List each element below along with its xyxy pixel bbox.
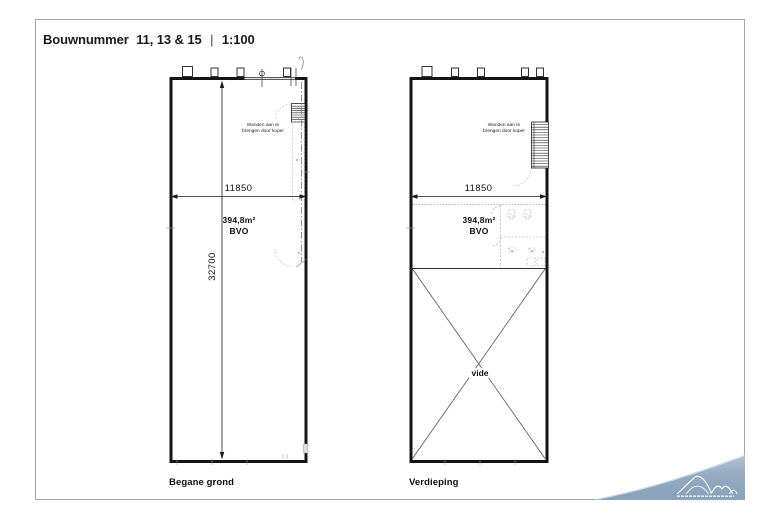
plan2-columns — [422, 67, 544, 77]
plan1-window-line — [243, 78, 296, 80]
plan1-caption: Begane grond — [169, 477, 234, 488]
plan1-columns — [183, 67, 291, 77]
vide-text: vide — [469, 368, 490, 378]
title-scale: 1:100 — [222, 32, 255, 47]
plan2-width-dimension-label: 11850 — [456, 183, 501, 194]
plan1-depth-dimension-label: 32700 — [207, 244, 218, 289]
plan2-vide-cross — [413, 269, 546, 459]
plan2-horizontal-dimension — [411, 194, 548, 198]
plan2-vide-label: vide — [461, 368, 499, 378]
plan2-walls — [410, 77, 549, 463]
plan1-note: Wanden aan te brengen door koper — [239, 123, 287, 135]
plan2-fixture-dots — [511, 250, 544, 253]
title-prefix: Bouwnummer — [43, 32, 129, 47]
plan1-area-label: 394,8m² — [213, 215, 265, 225]
plan1-horizontal-dimension — [171, 194, 307, 198]
sheet-title: Bouwnummer 11, 13 & 15 | 1:100 — [43, 32, 255, 47]
plan1-window-marks — [260, 57, 304, 87]
plan2-caption: Verdieping — [409, 477, 459, 488]
plan2-wall-ticks — [406, 228, 515, 465]
plan2-note-line2: brengen door koper — [480, 129, 528, 135]
sheet-frame — [36, 20, 745, 500]
plan2-note: Wanden aan te brengen door koper — [480, 123, 528, 135]
plan-begane-grond — [166, 57, 310, 465]
plan1-note-line2: brengen door koper — [239, 129, 287, 135]
plan1-walls — [170, 77, 308, 463]
plan2-area-type-label: BVO — [453, 226, 505, 236]
title-separator: | — [210, 32, 213, 47]
plan1-vertical-dimension — [220, 81, 224, 460]
floorplan-linework — [0, 0, 780, 520]
brand-wave — [596, 456, 745, 501]
plan2-area-label: 394,8m² — [453, 215, 505, 225]
title-numbers: 11, 13 & 15 — [136, 32, 201, 47]
drawing-sheet: Bouwnummer 11, 13 & 15 | 1:100 11850 327… — [0, 0, 780, 520]
plan1-width-dimension-label: 11850 — [216, 183, 261, 194]
plan1-wall-box — [304, 444, 309, 453]
plan1-area-type-label: BVO — [213, 226, 265, 236]
